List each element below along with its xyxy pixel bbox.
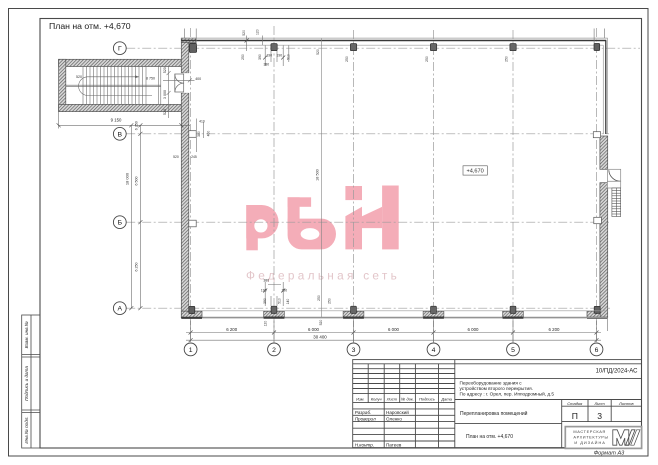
svg-text:АРХИТЕКТУРЫ: АРХИТЕКТУРЫ	[573, 435, 608, 440]
svg-text:устройством второго перекрытия: устройством второго перекрытия.	[460, 385, 534, 391]
svg-text:План на отм. +4,670: План на отм. +4,670	[49, 21, 131, 31]
svg-text:Наровский: Наровский	[386, 409, 409, 415]
svg-text:Н.контр.: Н.контр.	[355, 442, 374, 447]
svg-text:В: В	[118, 131, 123, 138]
svg-text:Г: Г	[118, 46, 122, 53]
svg-text:Перепланировка помещений: Перепланировка помещений	[460, 410, 528, 417]
svg-text:520: 520	[173, 155, 179, 159]
svg-text:План на отм. +4,670: План на отм. +4,670	[466, 434, 513, 440]
svg-text:120: 120	[264, 321, 268, 327]
svg-text:Оленко: Оленко	[386, 417, 402, 422]
svg-text:190: 190	[277, 54, 283, 58]
svg-text:4: 4	[432, 347, 436, 354]
svg-text:6 000: 6 000	[308, 327, 320, 332]
svg-text:Инв.№ подл.: Инв.№ подл.	[24, 416, 29, 443]
svg-text:520: 520	[242, 30, 246, 36]
svg-text:№ док.: № док.	[401, 397, 414, 402]
svg-text:Патеев: Патеев	[386, 442, 402, 447]
svg-text:390: 390	[258, 54, 262, 60]
svg-text:520: 520	[319, 320, 323, 326]
svg-text:Листов: Листов	[618, 401, 634, 406]
svg-text:400: 400	[195, 77, 201, 81]
svg-text:Изм.: Изм.	[356, 397, 365, 402]
svg-text:380: 380	[263, 62, 269, 66]
svg-text:9 150: 9 150	[111, 118, 122, 123]
svg-text:510: 510	[286, 54, 290, 60]
svg-text:10/ПД/2024-АС: 10/ПД/2024-АС	[596, 369, 639, 375]
svg-text:Формат А3: Формат А3	[594, 451, 625, 457]
svg-text:18 000: 18 000	[125, 172, 130, 185]
svg-text:190: 190	[267, 54, 273, 58]
svg-text:Дата: Дата	[440, 397, 452, 402]
svg-text:Б: Б	[118, 220, 123, 227]
svg-text:400: 400	[207, 131, 211, 137]
svg-text:250: 250	[345, 56, 349, 62]
svg-text:П: П	[572, 411, 578, 421]
svg-text:По адресу : г. Орел, пер. Ипп: По адресу : г. Орел, пер. Ипподромный, д…	[460, 391, 555, 397]
svg-text:1: 1	[189, 347, 193, 354]
svg-text:5: 5	[511, 347, 515, 354]
svg-text:380: 380	[263, 278, 269, 282]
svg-text:Колуч: Колуч	[371, 397, 382, 402]
svg-text:250: 250	[504, 56, 508, 62]
svg-text:520: 520	[76, 75, 82, 79]
svg-text:3 000: 3 000	[163, 90, 167, 99]
svg-text:390: 390	[263, 298, 267, 304]
svg-text:Лист: Лист	[386, 397, 398, 402]
svg-text:6 250: 6 250	[134, 263, 138, 272]
svg-text:6: 6	[595, 347, 599, 354]
svg-text:А: А	[118, 306, 123, 313]
svg-text:2: 2	[272, 347, 276, 354]
svg-text:8 750: 8 750	[146, 76, 155, 80]
svg-text:410: 410	[199, 119, 205, 123]
svg-text:3: 3	[597, 411, 602, 421]
svg-text:6 200: 6 200	[549, 327, 561, 332]
svg-text:Подпись: Подпись	[419, 397, 435, 402]
svg-text:Взам. инв.№: Взам. инв.№	[24, 321, 29, 348]
svg-text:Разраб.: Разраб.	[355, 410, 372, 415]
svg-text:18 500: 18 500	[316, 169, 320, 181]
svg-text:30 400: 30 400	[313, 335, 327, 340]
svg-text:245: 245	[191, 155, 197, 159]
svg-text:Переоборудование здания с: Переоборудование здания с	[460, 380, 523, 385]
svg-text:6 200: 6 200	[226, 327, 238, 332]
svg-text:3: 3	[352, 347, 356, 354]
svg-text:+4,670: +4,670	[466, 169, 483, 175]
svg-text:190: 190	[282, 288, 288, 292]
svg-text:510: 510	[278, 298, 282, 304]
svg-text:520: 520	[163, 109, 167, 115]
svg-text:Лист: Лист	[593, 401, 605, 406]
svg-text:520: 520	[163, 67, 167, 73]
svg-text:Федеральная сеть: Федеральная сеть	[246, 269, 400, 283]
svg-text:380: 380	[197, 131, 201, 137]
svg-text:МАСТЕРСКАЯ: МАСТЕРСКАЯ	[573, 429, 605, 434]
svg-text:И ДИЗАЙНА: И ДИЗАЙНА	[574, 440, 605, 445]
svg-text:250: 250	[317, 295, 321, 301]
svg-text:250: 250	[425, 56, 429, 62]
svg-text:6 500: 6 500	[134, 177, 138, 186]
svg-text:6 000: 6 000	[388, 327, 400, 332]
svg-text:190: 190	[261, 288, 267, 292]
svg-text:140: 140	[286, 299, 290, 305]
svg-text:520: 520	[316, 49, 320, 55]
svg-text:250: 250	[241, 54, 245, 60]
svg-text:Стадия: Стадия	[567, 401, 583, 406]
svg-text:250: 250	[328, 298, 332, 304]
svg-text:Проверил: Проверил	[355, 417, 376, 422]
svg-text:120: 120	[256, 29, 260, 35]
svg-text:6 250: 6 250	[134, 121, 138, 130]
svg-text:6 000: 6 000	[468, 327, 480, 332]
svg-text:Подпись и дата: Подпись и дата	[24, 366, 29, 401]
